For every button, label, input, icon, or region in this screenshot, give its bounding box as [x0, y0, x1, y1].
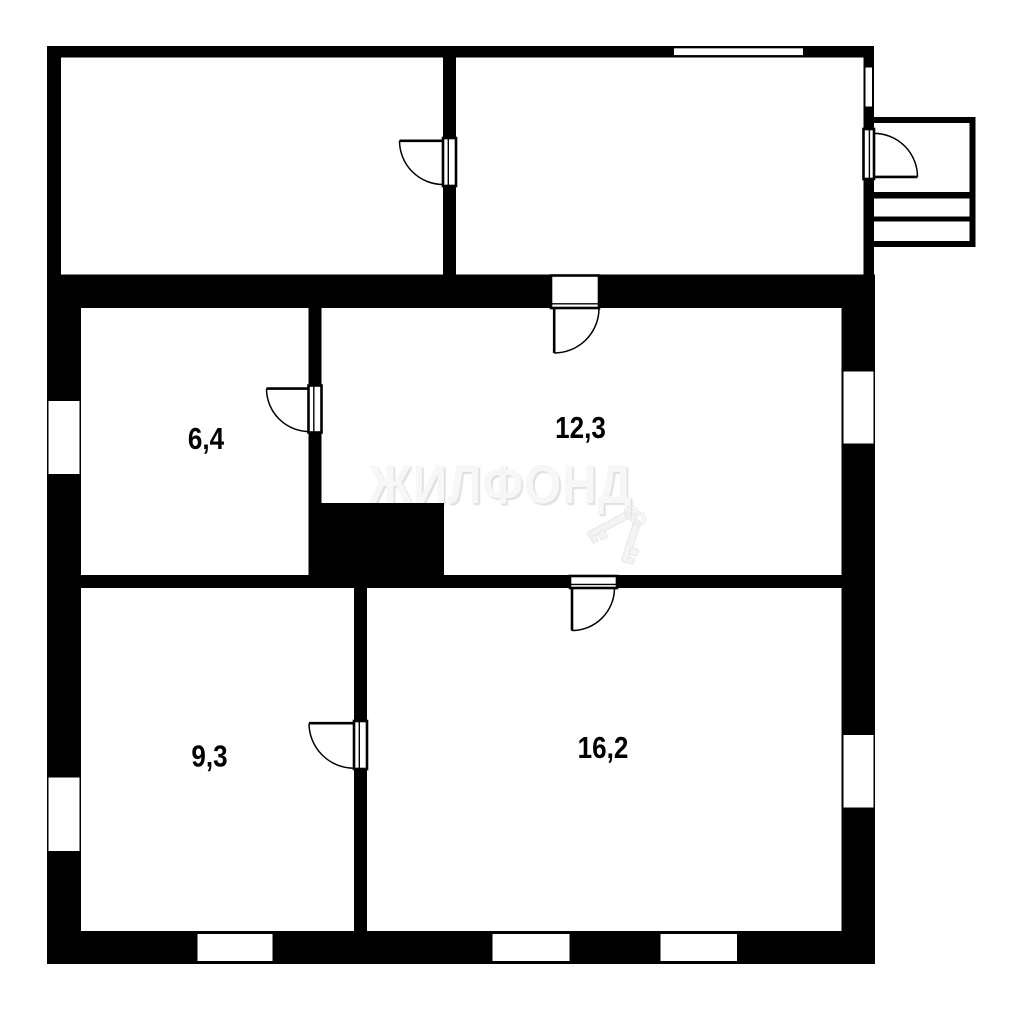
svg-text:9,3: 9,3 [191, 739, 227, 774]
svg-text:6,4: 6,4 [188, 422, 224, 457]
svg-text:16,2: 16,2 [578, 731, 629, 766]
svg-text:12,3: 12,3 [555, 411, 606, 446]
